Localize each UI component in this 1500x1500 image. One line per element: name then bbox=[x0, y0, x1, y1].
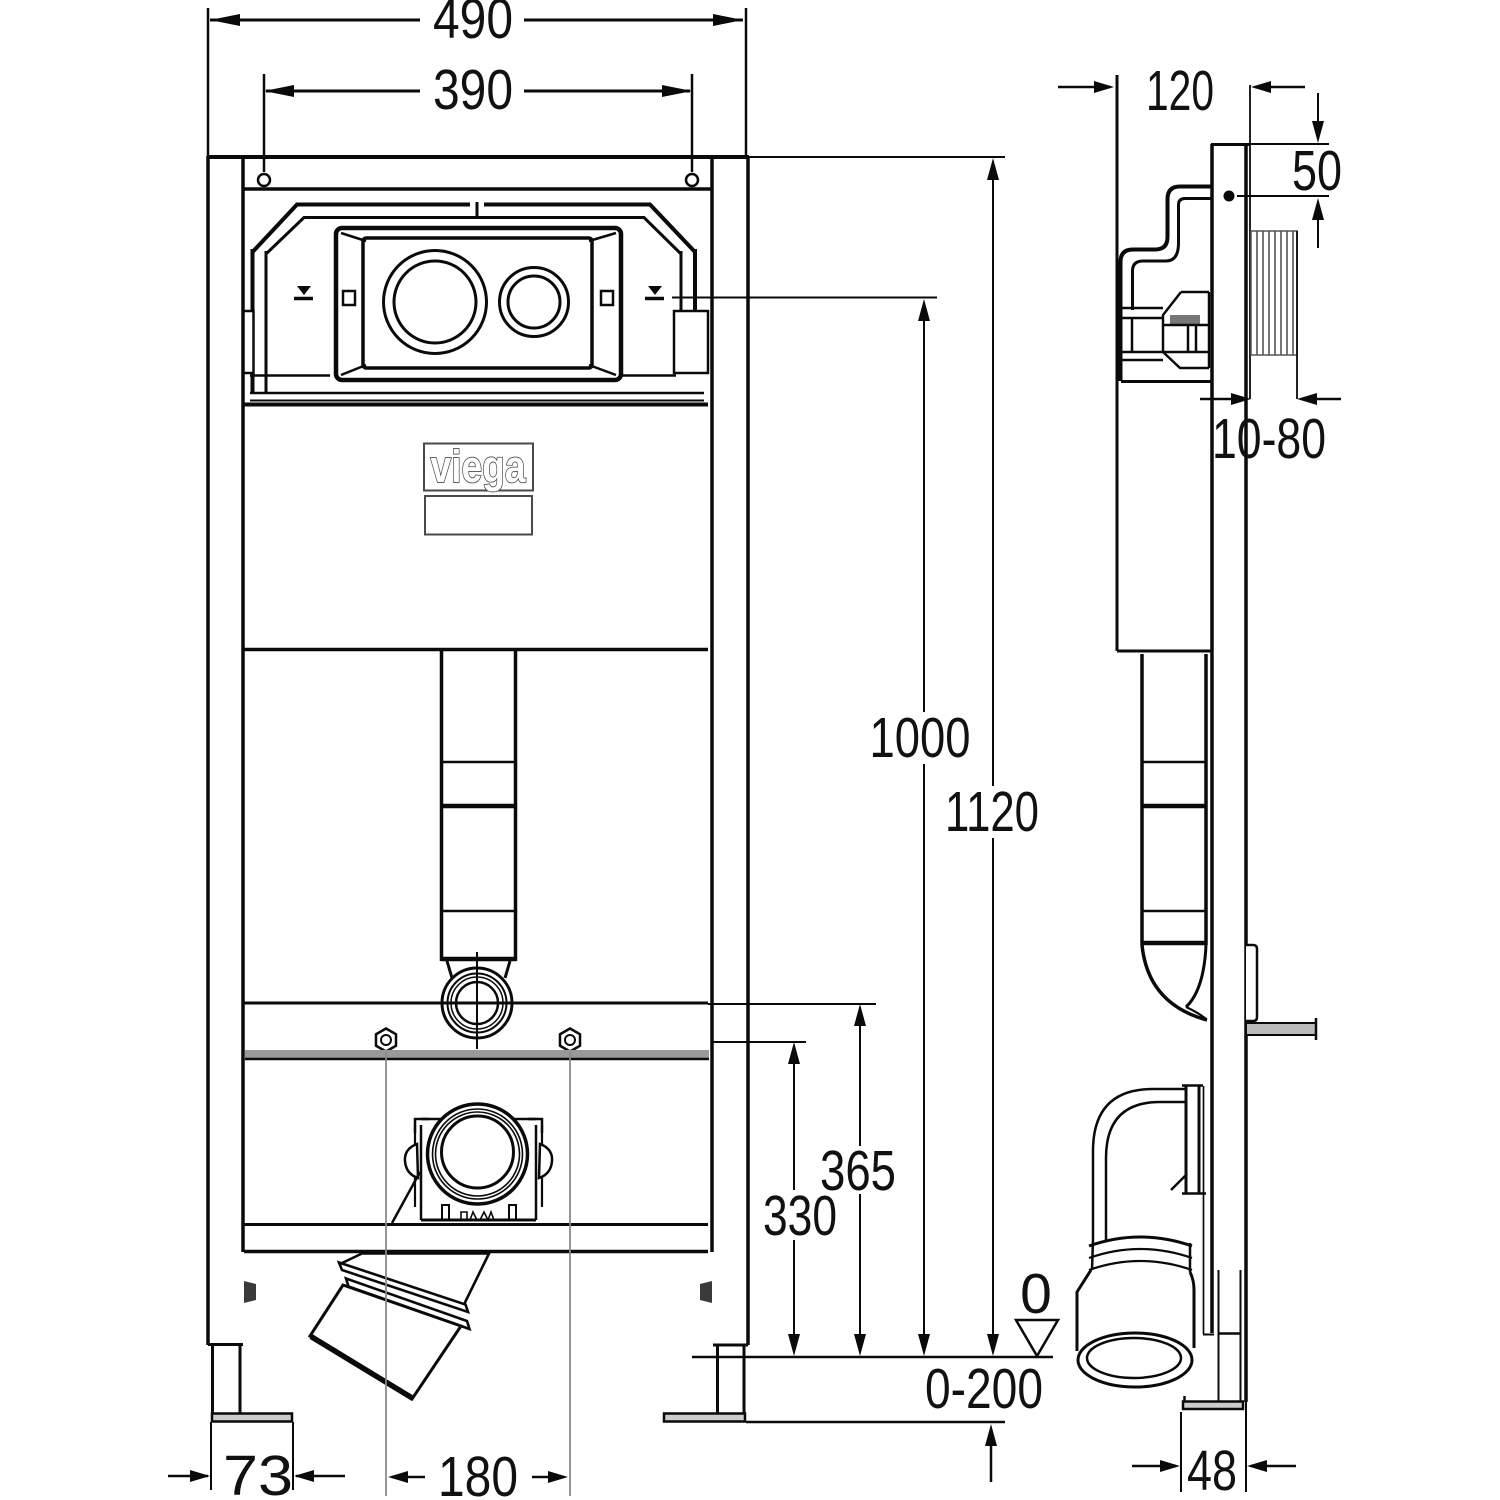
svg-text:0: 0 bbox=[1020, 1262, 1052, 1326]
svg-text:10-80: 10-80 bbox=[1212, 407, 1326, 471]
svg-text:180: 180 bbox=[438, 1445, 518, 1500]
svg-text:120: 120 bbox=[1146, 59, 1214, 123]
svg-text:390: 390 bbox=[433, 58, 513, 122]
svg-text:48: 48 bbox=[1187, 1439, 1237, 1500]
svg-text:73: 73 bbox=[223, 1444, 293, 1500]
svg-text:1000: 1000 bbox=[870, 706, 971, 770]
svg-text:50: 50 bbox=[1292, 139, 1342, 203]
svg-text:viega: viega bbox=[431, 441, 527, 492]
svg-text:365: 365 bbox=[820, 1139, 896, 1203]
svg-text:1120: 1120 bbox=[945, 780, 1039, 844]
svg-text:490: 490 bbox=[433, 0, 513, 51]
svg-text:0-200: 0-200 bbox=[925, 1357, 1043, 1421]
